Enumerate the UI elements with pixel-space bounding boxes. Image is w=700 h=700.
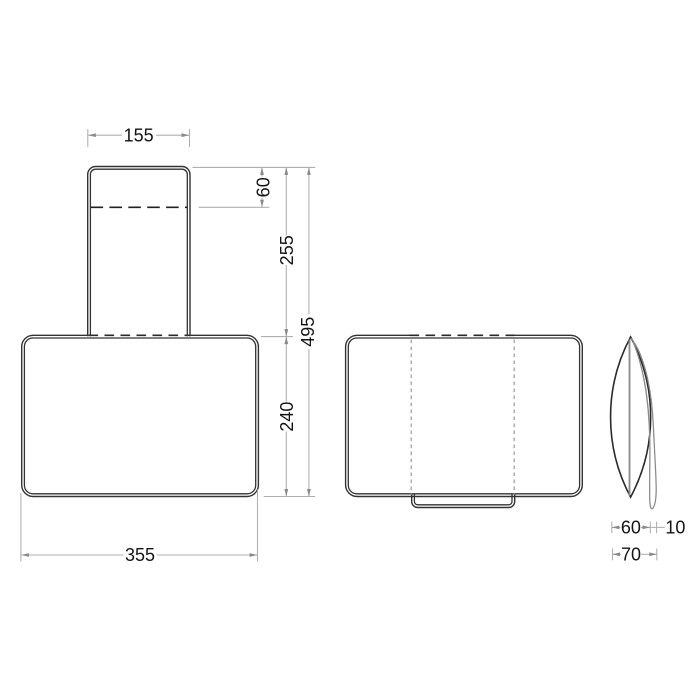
svg-text:355: 355: [125, 545, 155, 565]
svg-text:60: 60: [253, 177, 273, 197]
svg-text:255: 255: [277, 235, 297, 265]
svg-text:495: 495: [298, 317, 318, 347]
svg-text:10: 10: [665, 518, 685, 538]
svg-text:70: 70: [621, 545, 641, 565]
svg-text:60: 60: [621, 518, 641, 538]
svg-text:155: 155: [124, 125, 154, 145]
svg-text:240: 240: [277, 402, 297, 432]
